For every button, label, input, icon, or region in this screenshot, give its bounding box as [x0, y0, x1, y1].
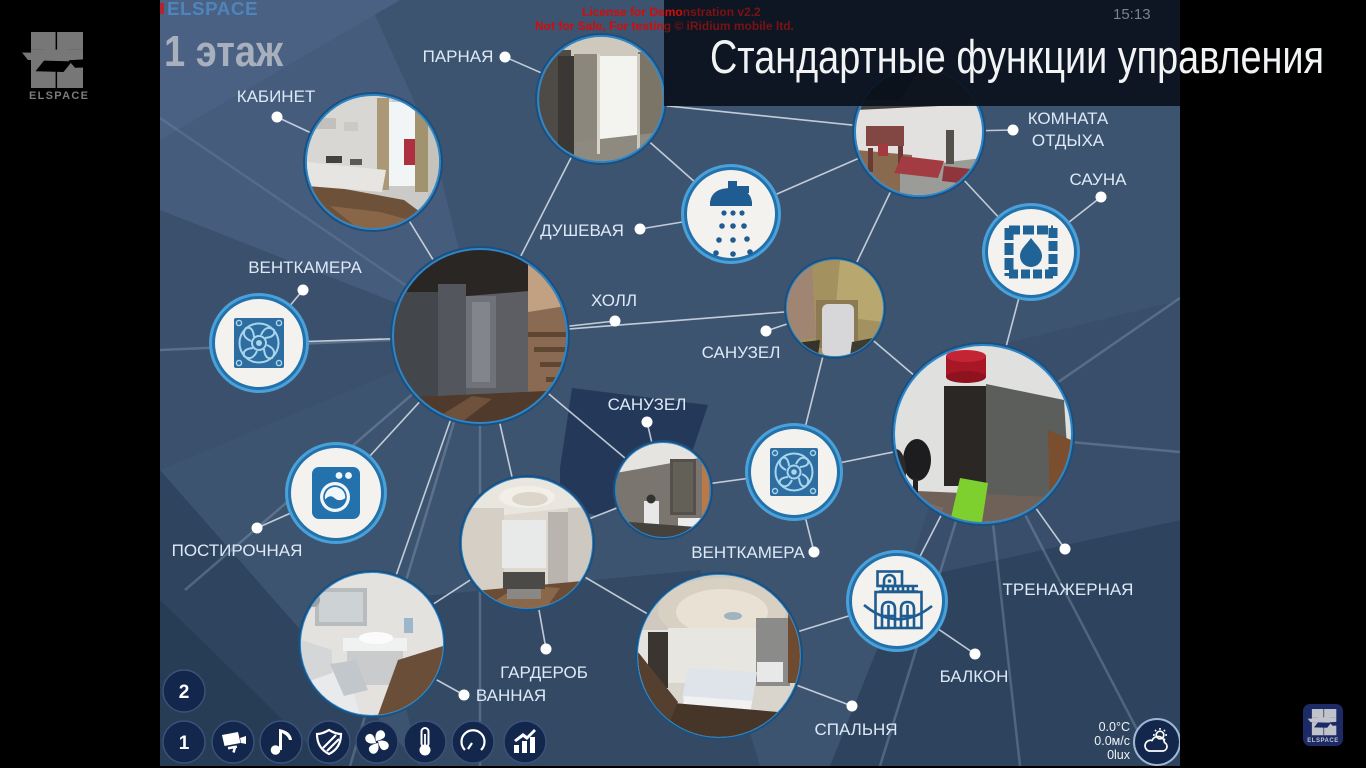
svg-text:0lux: 0lux	[1107, 748, 1131, 762]
svg-text:2: 2	[179, 682, 190, 703]
svg-text:ДУШЕВАЯ: ДУШЕВАЯ	[540, 221, 624, 240]
svg-text:ОТДЫХА: ОТДЫХА	[1032, 131, 1105, 150]
svg-text:1: 1	[179, 733, 190, 754]
svg-text:ПОСТИРОЧНАЯ: ПОСТИРОЧНАЯ	[172, 541, 303, 560]
svg-text:ELSPACE: ELSPACE	[167, 0, 258, 19]
svg-text:0.0°C: 0.0°C	[1099, 720, 1130, 734]
svg-text:ВЕНТКАМЕРА: ВЕНТКАМЕРА	[691, 543, 805, 562]
svg-text:ГАРДЕРОБ: ГАРДЕРОБ	[500, 663, 588, 682]
svg-text:1 этаж: 1 этаж	[164, 27, 284, 76]
svg-text:САНУЗЕЛ: САНУЗЕЛ	[608, 395, 687, 414]
svg-text:ВАННАЯ: ВАННАЯ	[476, 686, 546, 705]
svg-text:0.0м/с: 0.0м/с	[1094, 734, 1130, 748]
svg-text:БАЛКОН: БАЛКОН	[940, 667, 1009, 686]
svg-text:ВЕНТКАМЕРА: ВЕНТКАМЕРА	[248, 258, 362, 277]
svg-text:КАБИНЕТ: КАБИНЕТ	[237, 87, 316, 106]
svg-text:САУНА: САУНА	[1070, 170, 1128, 189]
svg-text:ХОЛЛ: ХОЛЛ	[591, 291, 637, 310]
svg-text:САНУЗЕЛ: САНУЗЕЛ	[702, 343, 781, 362]
svg-text:ELSPACE: ELSPACE	[1307, 738, 1338, 744]
svg-text:ELSPACE: ELSPACE	[29, 90, 89, 102]
svg-text:15:13: 15:13	[1113, 6, 1151, 23]
svg-text:КОМНАТА: КОМНАТА	[1028, 109, 1109, 128]
svg-text:ПАРНАЯ: ПАРНАЯ	[423, 47, 494, 66]
svg-text:ТРЕНАЖЕРНАЯ: ТРЕНАЖЕРНАЯ	[1003, 580, 1134, 599]
svg-text:License for Demonstration v2.2: License for Demonstration v2.2	[582, 5, 761, 19]
svg-text:Стандартные функции управления: Стандартные функции управления	[710, 30, 1324, 83]
svg-text:СПАЛЬНЯ: СПАЛЬНЯ	[814, 720, 897, 739]
